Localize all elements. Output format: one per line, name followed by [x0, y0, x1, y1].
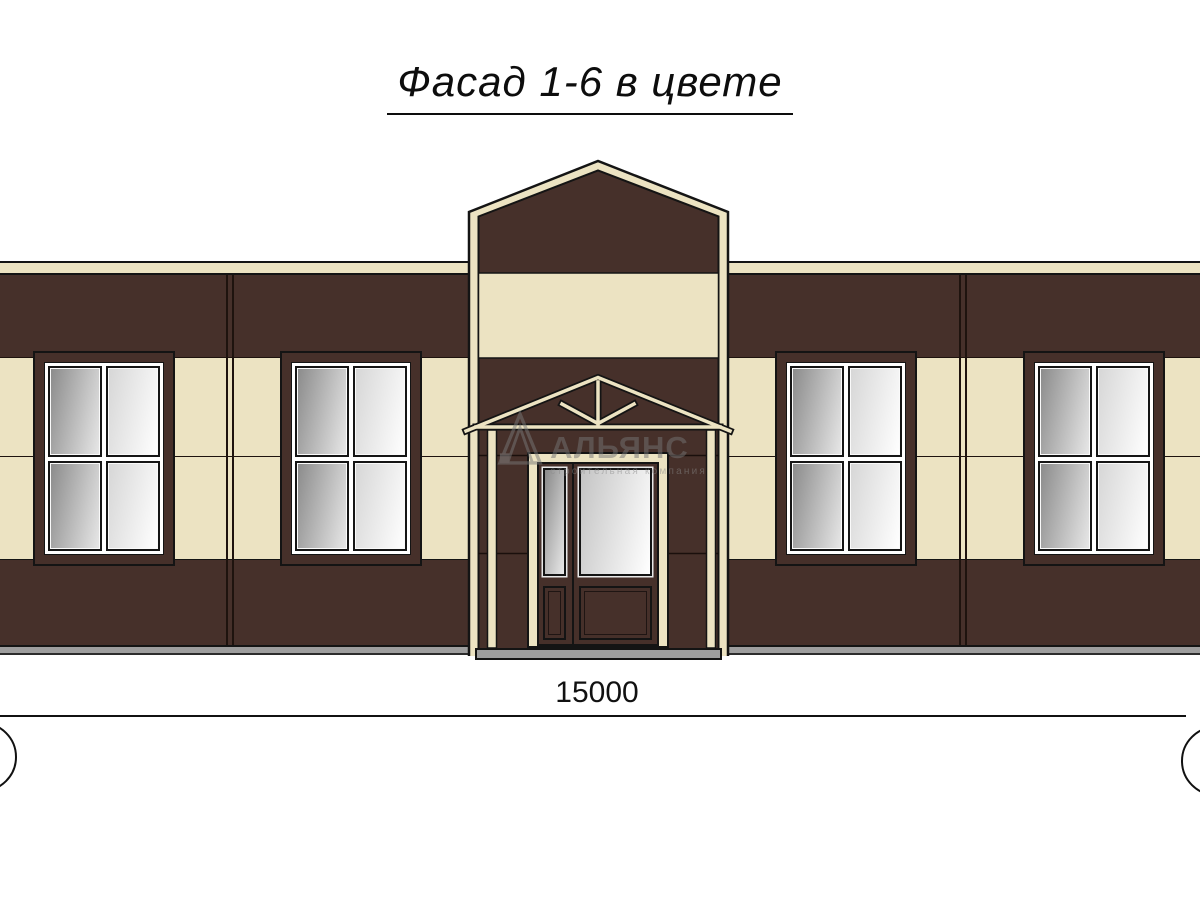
portico-post-right — [707, 430, 716, 648]
window-pane — [1038, 461, 1092, 552]
dimension-line — [0, 715, 1186, 717]
page-title-text: Фасад 1-6 в цвете — [387, 58, 792, 115]
portico-post-left — [488, 430, 497, 648]
door-panel-narrow — [543, 586, 566, 640]
grid-bubble-left — [0, 722, 17, 792]
door-leaf-narrow — [539, 464, 574, 644]
door-panel-inset — [584, 591, 647, 635]
window-1-glazing — [44, 362, 164, 555]
window-pane — [106, 461, 160, 552]
window-pane — [353, 461, 407, 552]
grid-bubble-right — [1181, 726, 1200, 796]
window-3 — [775, 351, 917, 566]
window-4-glazing — [1034, 362, 1154, 555]
tower-cream-band — [479, 273, 719, 358]
window-4 — [1023, 351, 1165, 566]
door-leaf-wide — [574, 464, 657, 644]
window-pane — [1038, 366, 1092, 457]
panel-joint-right — [959, 275, 967, 645]
window-pane — [1096, 366, 1150, 457]
window-pane — [790, 366, 844, 457]
window-1 — [33, 351, 175, 566]
window-pane — [295, 461, 349, 552]
entrance-door — [527, 452, 669, 648]
window-pane — [295, 366, 349, 457]
page-title: Фасад 1-6 в цвете — [0, 58, 1180, 115]
window-3-glazing — [786, 362, 906, 555]
window-pane — [1096, 461, 1150, 552]
door-panel-inset — [548, 591, 561, 635]
window-pane — [106, 366, 160, 457]
window-pane — [48, 366, 102, 457]
dimension-label: 15000 — [0, 676, 1194, 710]
entrance-door-body — [537, 462, 659, 646]
door-glass-narrow — [543, 468, 566, 576]
window-pane — [848, 366, 902, 457]
panel-joint-left — [226, 275, 234, 645]
door-panel-wide — [579, 586, 652, 640]
truss-members — [466, 378, 730, 432]
window-pane — [848, 461, 902, 552]
window-2 — [280, 351, 422, 566]
window-pane — [48, 461, 102, 552]
window-pane — [790, 461, 844, 552]
porch-step — [475, 648, 722, 660]
facade-drawing-canvas: Фасад 1-6 в цвете — [0, 0, 1200, 900]
window-pane — [353, 366, 407, 457]
door-glass-wide — [579, 468, 652, 576]
window-2-glazing — [291, 362, 411, 555]
